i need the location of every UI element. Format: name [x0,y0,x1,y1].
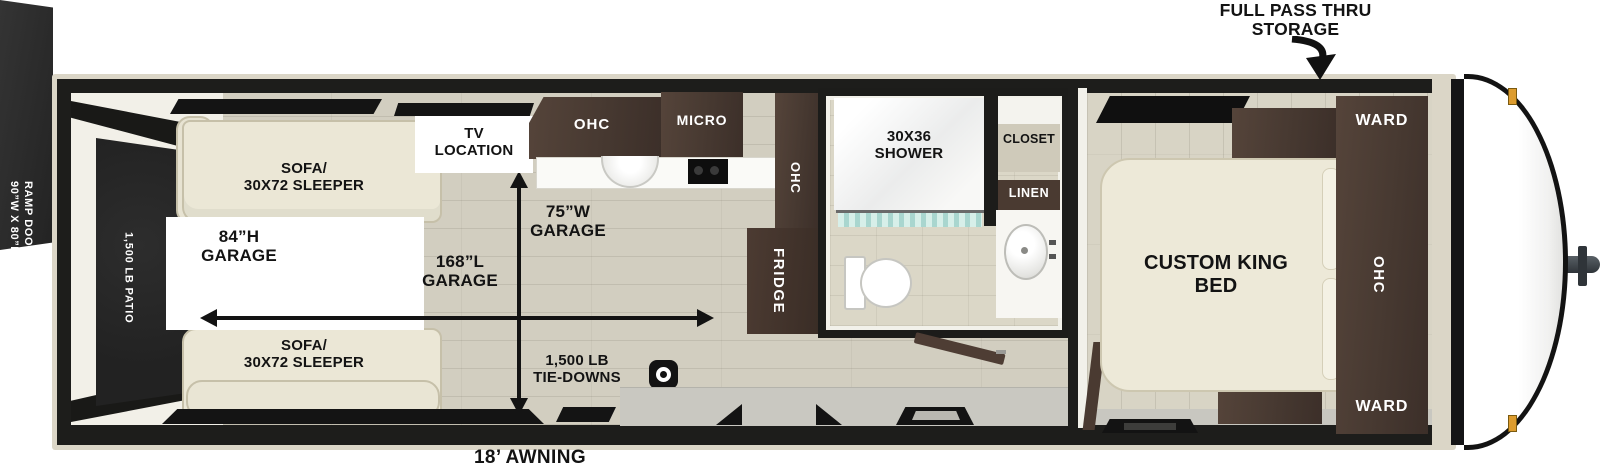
cooktop-burner-right [710,166,719,175]
kitchen-ohc-side-label: OHC [787,154,807,202]
kitchen-ohc-label: OHC [552,116,632,133]
entry-step-tread [912,411,960,420]
bathroom-door-handle [996,350,1006,354]
bathroom: 30X36 SHOWER CLOSET LINEN [818,88,1070,338]
shower-curtain [838,213,982,227]
window-top-tv [394,103,534,116]
entry-walkway [620,387,1075,426]
kitchen-micro-label: MICRO [658,113,746,129]
tv-location-label: TV LOCATION [417,125,531,159]
king-bed-label: CUSTOM KING BED [1104,252,1328,298]
bedroom-floor-vent-inner [1124,423,1176,430]
marker-light-bottom [1508,415,1517,432]
pass-thru-storage-label: FULL PASS THRU STORAGE [1178,1,1413,39]
linen-label: LINEN [996,186,1062,200]
garage-length-label: 168”L GARAGE [402,252,518,291]
garage-length-arrowhead-right [697,309,714,327]
garage-length-arrowhead-left [200,309,217,327]
bedroom-wall-black [1068,88,1078,428]
awning-label: 18’ AWNING [425,447,635,469]
garage-width-label: 75”W GARAGE [512,202,624,241]
faucet-handle-top [1049,240,1056,245]
marker-light-top [1508,88,1517,105]
window-bottom-sofa [162,409,544,424]
shower-closet-wall [984,96,998,226]
garage-height-label: 84”H GARAGE [168,227,310,266]
hitch-post [1578,246,1587,286]
nightstand-top [1232,108,1336,164]
wardrobe-top-label: WARD [1336,112,1428,130]
shower-label: 30X36 SHOWER [842,128,976,162]
closet-label: CLOSET [996,132,1062,146]
front-wall [1451,79,1464,445]
garage-width-arrowhead-up [510,171,528,188]
cooktop-burner-left [694,166,703,175]
sofa-bottom-label: SOFA/ 30X72 SLEEPER [196,337,412,371]
pass-thru-arrow [1284,36,1346,82]
patio-label: 1,500 LB PATIO [122,222,142,334]
garage-length-arrow-line [216,316,698,320]
tie-down-anchor-ring [656,367,671,382]
faucet-handle-bottom [1049,254,1056,259]
front-cap [1464,74,1568,450]
wardrobe-bottom-label: WARD [1336,398,1428,416]
sink-drain [1021,247,1028,254]
floorplan-canvas: 90”W X 80”H RAMP DOOR 3,000 LB RAMP DOOR… [0,0,1600,472]
toilet-bowl [860,258,912,308]
fridge-label: FRIDGE [770,231,796,331]
window-bottom-small [556,407,616,422]
ramp-door-capacity-label: 3,000 LB RAMP DOOR [7,283,47,393]
bedroom-skylight [1096,96,1250,123]
sofa-top-label: SOFA/ 30X72 SLEEPER [196,160,412,194]
ramp-door-size-label: 90”W X 80”H RAMP DOOR [7,158,47,278]
bedroom-ohc-label: OHC [1370,246,1392,304]
bedroom-wall-white [1078,88,1087,428]
window-top-sofa [170,99,382,114]
tie-downs-label: 1,500 LB TIE-DOWNS [514,352,640,386]
front-shell-strip [1432,79,1451,445]
